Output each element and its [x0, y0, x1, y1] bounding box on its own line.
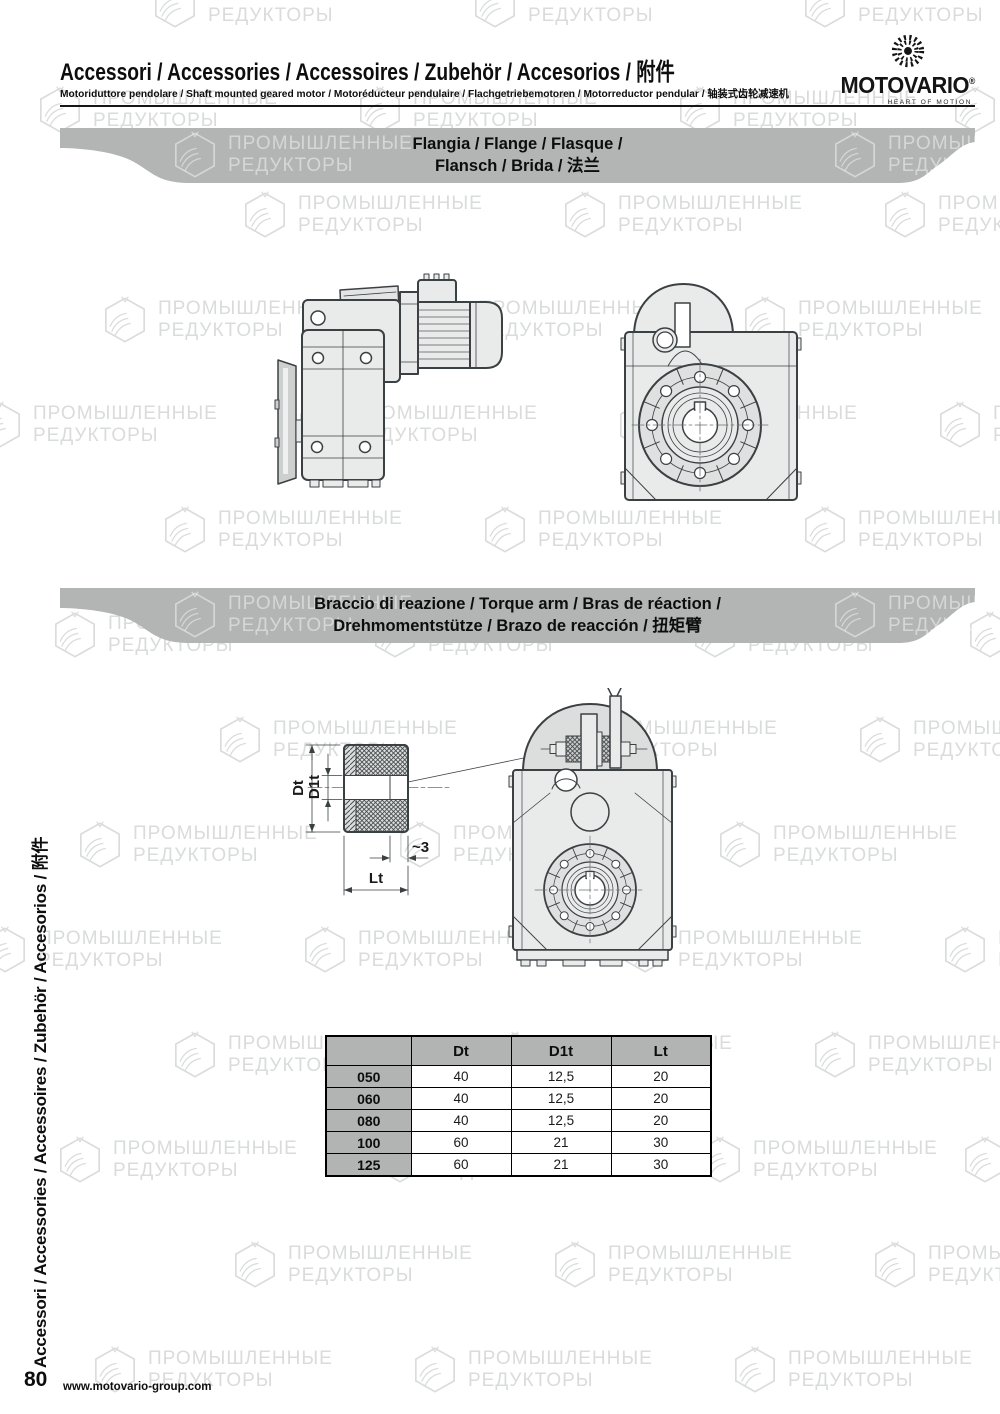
- torque-arm-dimensions-table: Dt D1t Lt 050 40 12,5 20 060 40 12,5 20 …: [325, 1035, 712, 1177]
- cell-lt: 20: [611, 1088, 711, 1110]
- watermark: ПРОМЫШЛЕННЫЕРЕДУКТОРЫ: [240, 190, 483, 240]
- table-row: 100 60 21 30: [326, 1132, 711, 1154]
- registered-mark: ®: [969, 76, 975, 86]
- watermark: ПРОМЫШЛЕННЫЕРЕДУКТОРЫ: [230, 1240, 473, 1290]
- hexagon-watermark-icon: [150, 0, 200, 30]
- dim-label-d1t: D1t: [306, 775, 323, 799]
- hexagon-watermark-icon: [810, 1030, 860, 1080]
- cell-d1t: 21: [511, 1132, 611, 1154]
- row-id: 060: [326, 1088, 411, 1110]
- table-row: 060 40 12,5 20: [326, 1088, 711, 1110]
- header-size: [326, 1036, 411, 1066]
- hexagon-watermark-icon: [960, 1135, 1000, 1185]
- hexagon-watermark-icon: [160, 505, 210, 555]
- dim-label-approx3: ~3: [412, 839, 429, 856]
- watermark: ПРОМЫШЛЕННЫЕРЕДУКТОРЫ: [800, 0, 1000, 30]
- hexagon-watermark-icon: [480, 505, 530, 555]
- hexagon-watermark-icon: [240, 190, 290, 240]
- logo-tagline: HEART OF MOTION: [888, 99, 972, 106]
- watermark: ПРОМЫШЛЕННЫЕРЕДУКТОРЫ: [855, 715, 1000, 765]
- row-id: 100: [326, 1132, 411, 1154]
- flange-banner-line2: Flansch / Brida / 法兰: [435, 157, 600, 175]
- watermark: ПРОМЫШЛЕННЫЕРЕДУКТОРЫ: [935, 400, 1000, 450]
- cell-dt: 60: [411, 1154, 511, 1177]
- watermark: ПРОМЫШЛЕННЫЕРЕДУКТОРЫ: [150, 0, 393, 30]
- hexagon-watermark-icon: [800, 0, 850, 30]
- row-id: 125: [326, 1154, 411, 1177]
- hexagon-watermark-icon: [230, 1240, 280, 1290]
- watermark: ПРОМЫШЛЕННЫЕРЕДУКТОРЫ: [800, 505, 1000, 555]
- hexagon-watermark-icon: [880, 190, 930, 240]
- cell-dt: 40: [411, 1110, 511, 1132]
- hexagon-watermark-icon: [935, 400, 985, 450]
- hexagon-watermark-icon: [55, 1135, 105, 1185]
- watermark: ПРОМЫШЛЕННЫЕРЕДУКТОРЫ: [560, 190, 803, 240]
- watermark: ПРОМЫШЛЕННЫЕРЕДУКТОРЫ: [940, 925, 1000, 975]
- torque-arm-drawing: [505, 688, 680, 988]
- watermark: ПРОМЫШЛЕННЫЕРЕДУКТОРЫ: [810, 1030, 1000, 1080]
- hexagon-watermark-icon: [870, 1240, 920, 1290]
- cell-lt: 30: [611, 1154, 711, 1177]
- cell-d1t: 21: [511, 1154, 611, 1177]
- watermark: ПРОМЫШЛЕННЫЕРЕДУКТОРЫ: [410, 1345, 653, 1395]
- cell-lt: 30: [611, 1132, 711, 1154]
- page-subtitle: Motoriduttore pendolare / Shaft mounted …: [60, 86, 789, 101]
- watermark: ПРОМЫШЛЕННЫЕРЕДУКТОРЫ: [550, 1240, 793, 1290]
- logo-wordmark: MOTOVARIO®: [841, 74, 975, 97]
- watermark: ПРОМЫШЛЕННЫЕРЕДУКТОРЫ: [715, 820, 958, 870]
- hexagon-watermark-icon: [560, 190, 610, 240]
- flange-side-view-drawing: [262, 272, 547, 507]
- flange-banner: Flangia / Flange / Flasque / Flansch / B…: [60, 128, 975, 185]
- hexagon-watermark-icon: [855, 715, 905, 765]
- watermark: ПРОМЫШЛЕННЫЕРЕДУКТОРЫ: [75, 820, 318, 870]
- table-row: 125 60 21 30: [326, 1154, 711, 1177]
- watermark: ПРОМЫШЛЕННЫЕРЕДУКТОРЫ: [0, 400, 218, 450]
- table-row: 080 40 12,5 20: [326, 1110, 711, 1132]
- hexagon-watermark-icon: [940, 925, 990, 975]
- flange-front-view-drawing: [612, 276, 802, 502]
- page-number: 80: [24, 1368, 47, 1392]
- hexagon-watermark-icon: [170, 1030, 220, 1080]
- table-row: 050 40 12,5 20: [326, 1066, 711, 1088]
- hexagon-watermark-icon: [100, 295, 150, 345]
- hexagon-watermark-icon: [215, 715, 265, 765]
- cell-lt: 20: [611, 1110, 711, 1132]
- torque-arm-banner-line2: Drehmomentstütze / Brazo de reacción / 扭…: [333, 617, 702, 635]
- sidebar-section-label: Accessori / Accessories / Accessoires / …: [26, 837, 51, 1368]
- cell-lt: 20: [611, 1066, 711, 1088]
- cell-dt: 40: [411, 1066, 511, 1088]
- catalog-page: ПРОМЫШЛЕННЫЕРЕДУКТОРЫПРОМЫШЛЕННЫЕРЕДУКТО…: [0, 0, 1000, 1414]
- torque-arm-banner-line1: Braccio di reazione / Torque arm / Bras …: [314, 595, 721, 613]
- motovario-rosette-icon: [885, 28, 931, 74]
- torque-arm-banner-title: Braccio di reazione / Torque arm / Bras …: [60, 594, 975, 638]
- header-d1t: D1t: [511, 1036, 611, 1066]
- hexagon-watermark-icon: [800, 505, 850, 555]
- hexagon-watermark-icon: [470, 0, 520, 30]
- row-id: 080: [326, 1110, 411, 1132]
- watermark: ПРОМЫШЛЕННЫЕРЕДУКТОРЫ: [870, 1240, 1000, 1290]
- watermark: ПРОМЫШЛЕННЫЕРЕДУКТОРЫ: [160, 505, 403, 555]
- watermark: ПРОМЫШЛЕННЫЕРЕДУКТОРЫ: [880, 190, 1000, 240]
- dim-label-lt: Lt: [369, 870, 383, 887]
- website-url: www.motovario-group.com: [63, 1381, 211, 1393]
- torque-arm-banner: Braccio di reazione / Torque arm / Bras …: [60, 588, 975, 645]
- hexagon-watermark-icon: [730, 1345, 780, 1395]
- cell-dt: 60: [411, 1132, 511, 1154]
- hexagon-watermark-icon: [715, 820, 765, 870]
- flange-banner-line1: Flangia / Flange / Flasque /: [413, 135, 623, 153]
- watermark: ПРОМЫШЛЕННЫЕРЕДУКТОРЫ: [695, 1135, 938, 1185]
- hexagon-watermark-icon: [75, 820, 125, 870]
- hexagon-watermark-icon: [410, 1345, 460, 1395]
- flange-banner-title: Flangia / Flange / Flasque / Flansch / B…: [60, 134, 975, 178]
- watermark: ПРОМЫШЛЕННЫЕРЕДУКТОРЫ: [730, 1345, 973, 1395]
- watermark: ПРОМЫШЛЕННЫЕРЕДУКТОРЫ: [960, 1135, 1000, 1185]
- hexagon-watermark-icon: [0, 400, 25, 450]
- motovario-logo: MOTOVARIO® HEART OF MOTION: [838, 28, 978, 106]
- table-header-row: Dt D1t Lt: [326, 1036, 711, 1066]
- hexagon-watermark-icon: [550, 1240, 600, 1290]
- watermark: ПРОМЫШЛЕННЫЕРЕДУКТОРЫ: [470, 0, 713, 30]
- logo-name-text: MOTOVARIO: [841, 72, 969, 98]
- cell-d1t: 12,5: [511, 1110, 611, 1132]
- dim-label-dt: Dt: [290, 780, 307, 796]
- cell-d1t: 12,5: [511, 1066, 611, 1088]
- cell-d1t: 12,5: [511, 1088, 611, 1110]
- watermark: ПРОМЫШЛЕННЫЕРЕДУКТОРЫ: [480, 505, 723, 555]
- watermark: ПРОМЫШЛЕННЫЕРЕДУКТОРЫ: [55, 1135, 298, 1185]
- header-dt: Dt: [411, 1036, 511, 1066]
- row-id: 050: [326, 1066, 411, 1088]
- page-title: Accessori / Accessories / Accessoires / …: [60, 52, 675, 87]
- cell-dt: 40: [411, 1088, 511, 1110]
- header-lt: Lt: [611, 1036, 711, 1066]
